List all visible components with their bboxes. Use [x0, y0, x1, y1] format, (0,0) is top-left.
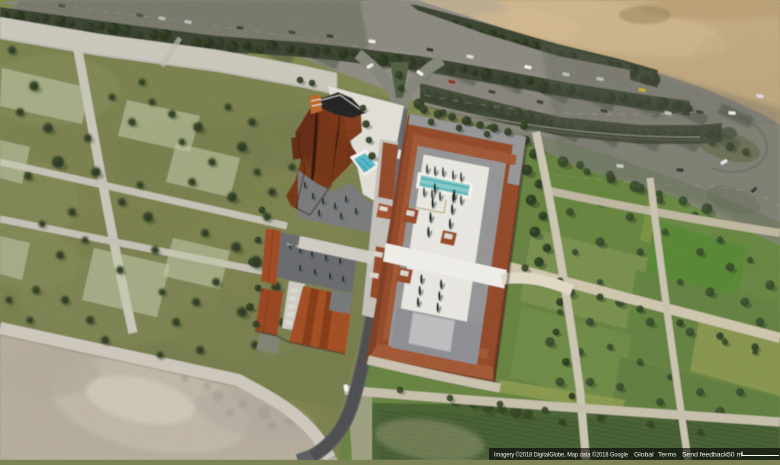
svg-text:Send feedback: Send feedback: [682, 452, 728, 459]
svg-text:Global: Global: [634, 452, 654, 459]
svg-text:Imagery ©2018 DigitalGlobe, Ma: Imagery ©2018 DigitalGlobe, Map data ©20…: [494, 451, 628, 459]
svg-text:Terms: Terms: [658, 452, 677, 459]
svg-text:50 m: 50 m: [727, 452, 742, 459]
